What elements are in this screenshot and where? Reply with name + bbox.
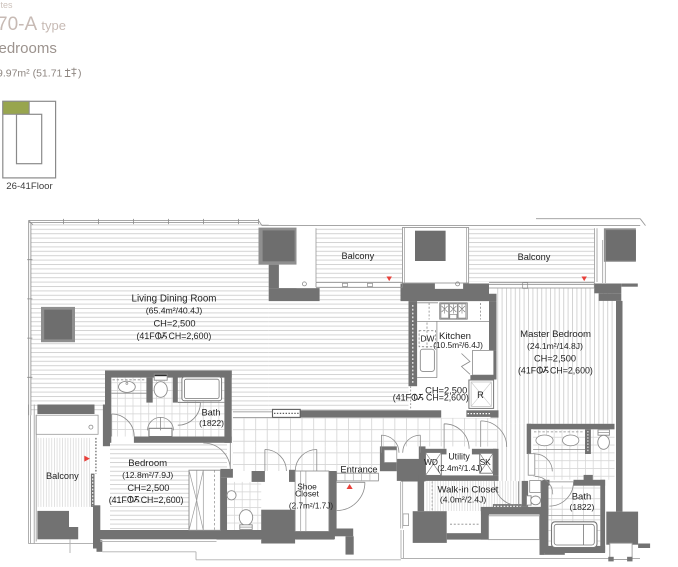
svg-text:CH=2,600): CH=2,600): [550, 366, 593, 376]
svg-text:CH=2,600): CH=2,600): [169, 331, 212, 341]
svg-text:(65.4m²/40.4J): (65.4m²/40.4J): [146, 305, 203, 315]
svg-text:SK: SK: [480, 457, 492, 467]
svg-text:(1822): (1822): [199, 418, 224, 428]
svg-text:Entrance: Entrance: [340, 465, 377, 475]
svg-text:CH=2,500: CH=2,500: [153, 318, 195, 328]
svg-text:(24.1m²/14.8J): (24.1m²/14.8J): [527, 341, 583, 351]
svg-text:Utility: Utility: [448, 452, 470, 462]
svg-text:26-41Floor: 26-41Floor: [6, 181, 53, 192]
svg-text:CH=2,500: CH=2,500: [534, 353, 576, 363]
svg-text:edrooms: edrooms: [0, 40, 57, 57]
svg-text:(2.4m²/1.4J): (2.4m²/1.4J): [437, 463, 482, 473]
svg-text:70-A type: 70-A type: [0, 14, 66, 35]
svg-text:(4.0m²/2.4J): (4.0m²/2.4J): [440, 495, 486, 505]
svg-text:(41F: (41F: [393, 393, 412, 403]
svg-text:CH=2,500: CH=2,500: [127, 483, 169, 493]
svg-text:ites: ites: [0, 0, 13, 10]
svg-text:Closet: Closet: [295, 489, 319, 499]
svg-text:DW: DW: [421, 334, 435, 344]
svg-text:CH=2,600): CH=2,600): [426, 393, 469, 403]
svg-text:Master Bedroom: Master Bedroom: [520, 329, 591, 340]
svg-text:Balcony: Balcony: [342, 251, 375, 261]
svg-text:Bath: Bath: [572, 492, 592, 503]
svg-text:Living Dining Room: Living Dining Room: [132, 294, 217, 305]
svg-text:(12.8m²/7.9J): (12.8m²/7.9J): [122, 470, 173, 480]
svg-text:(10.5m²/6.4J): (10.5m²/6.4J): [433, 340, 483, 350]
svg-text:9.97m² (51.71: 9.97m² (51.71: [0, 68, 63, 80]
svg-text:): ): [78, 68, 82, 80]
svg-text:Balcony: Balcony: [46, 471, 79, 481]
svg-text:(41F: (41F: [518, 366, 537, 376]
svg-text:(2.7m²/1.7J): (2.7m²/1.7J): [289, 502, 333, 511]
svg-text:(41F: (41F: [109, 495, 128, 505]
svg-text:CH=2,600): CH=2,600): [141, 495, 184, 505]
svg-text:R: R: [477, 390, 484, 400]
svg-text:(1822): (1822): [569, 502, 594, 512]
svg-text:(41F: (41F: [137, 331, 156, 341]
svg-text:Bedroom: Bedroom: [128, 458, 167, 469]
svg-text:WD: WD: [424, 457, 438, 467]
svg-text:Balcony: Balcony: [518, 252, 551, 262]
svg-text:Bath: Bath: [201, 408, 220, 418]
